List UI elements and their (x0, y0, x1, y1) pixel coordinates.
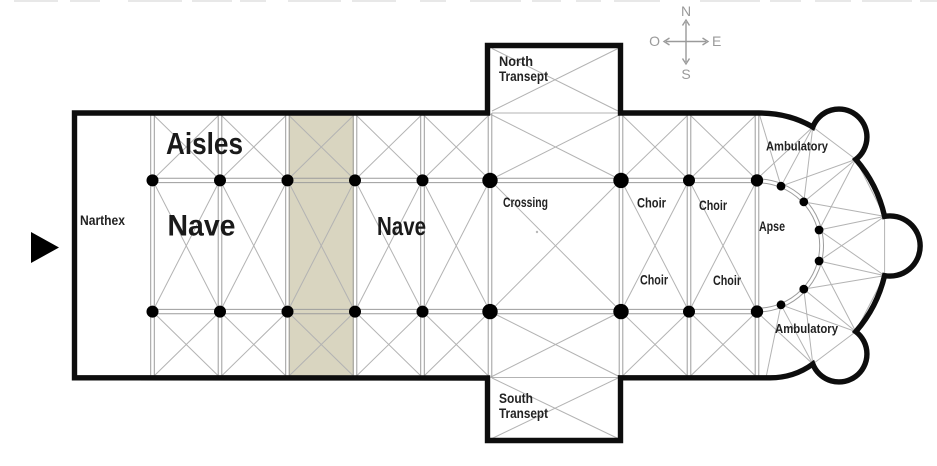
svg-text:Narthex: Narthex (80, 213, 125, 228)
svg-text:Choir: Choir (713, 273, 742, 288)
svg-text:North: North (499, 54, 533, 69)
svg-text:N: N (681, 3, 691, 19)
svg-text:O: O (649, 33, 660, 49)
svg-text:Crossing: Crossing (503, 195, 548, 210)
svg-text:Transept: Transept (499, 69, 548, 84)
svg-text:Transept: Transept (499, 406, 548, 421)
svg-text:E: E (712, 33, 721, 49)
svg-text:Ambulatory: Ambulatory (766, 140, 828, 154)
svg-text:Apse: Apse (759, 219, 785, 234)
svg-text:Choir: Choir (637, 196, 667, 211)
svg-text:Choir: Choir (699, 198, 728, 213)
svg-text:Ambulatory: Ambulatory (775, 322, 838, 336)
svg-text:Choir: Choir (640, 273, 669, 288)
svg-text:S: S (681, 66, 690, 82)
svg-text:Nave: Nave (168, 210, 236, 243)
svg-text:Nave: Nave (377, 211, 426, 241)
svg-text:Aisles: Aisles (166, 126, 243, 161)
svg-text:South: South (499, 391, 533, 406)
